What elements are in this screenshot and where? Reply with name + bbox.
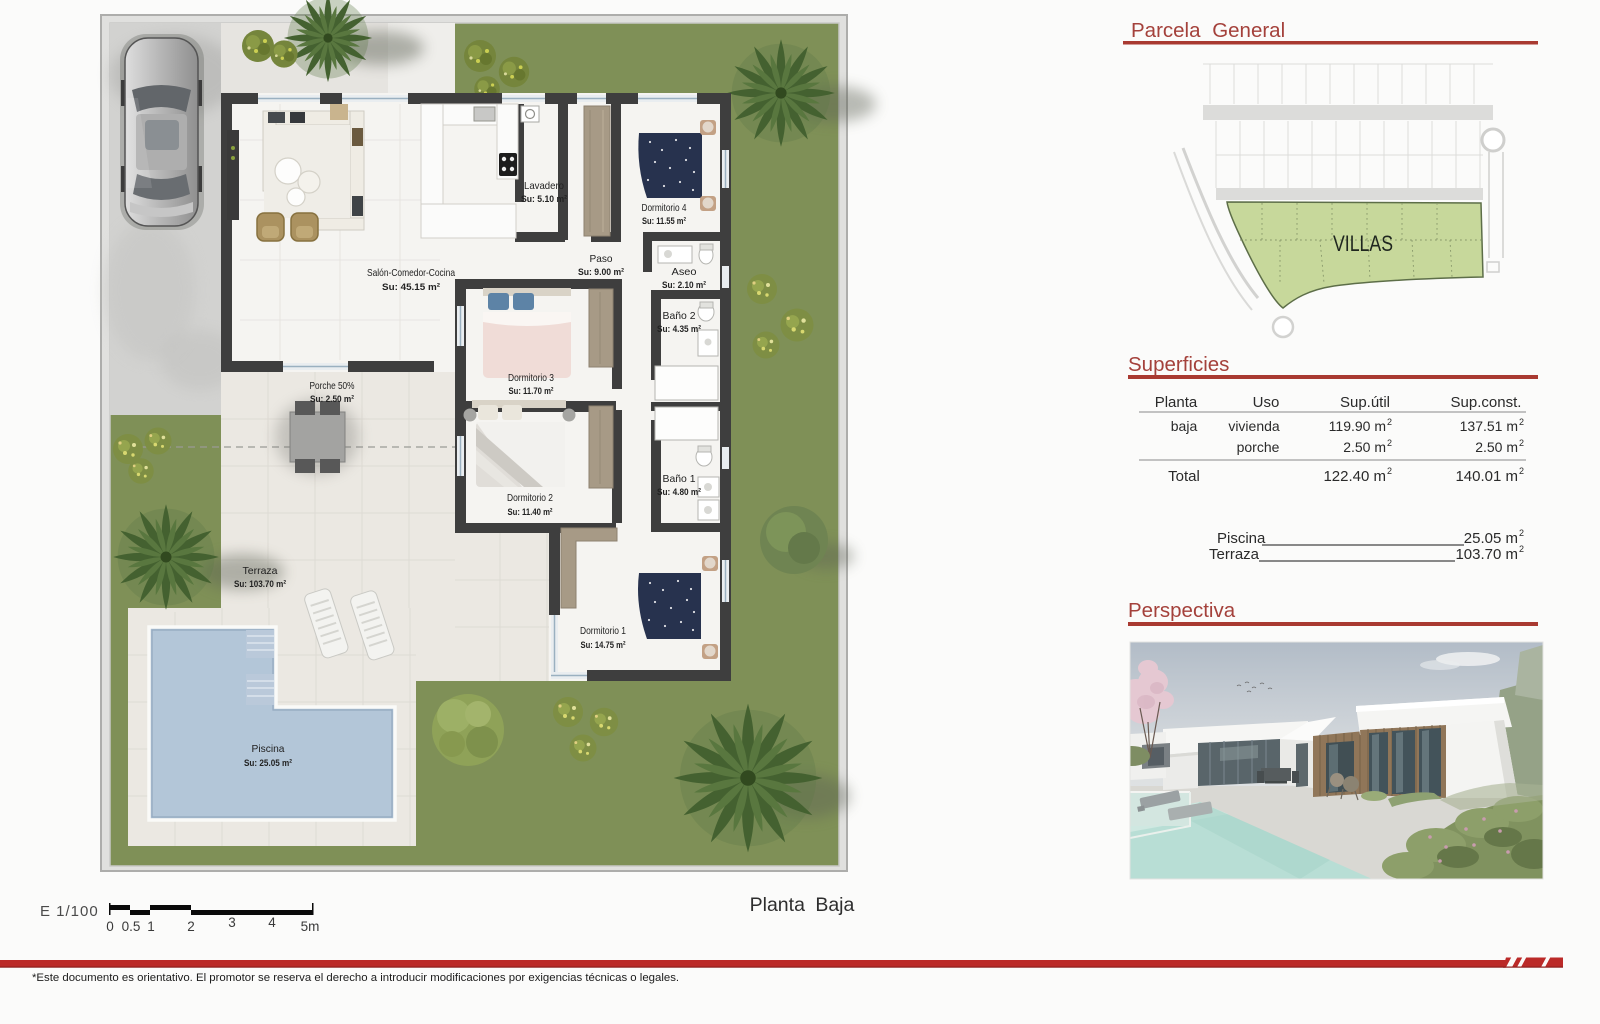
svg-text:Su: 2.10 m²: Su: 2.10 m²: [662, 280, 706, 291]
svg-text:Terraza: Terraza: [243, 565, 278, 577]
svg-text:Piscina: Piscina: [1217, 530, 1266, 547]
svg-text:porche: porche: [1237, 439, 1280, 455]
svg-text:2: 2: [1519, 466, 1524, 476]
svg-text:2: 2: [1519, 528, 1524, 538]
svg-text:122.40 m: 122.40 m: [1323, 468, 1386, 485]
svg-text:Su: 103.70 m²: Su: 103.70 m²: [234, 579, 286, 590]
svg-text:2: 2: [1519, 438, 1524, 448]
svg-text:0: 0: [106, 919, 114, 934]
svg-text:VILLAS: VILLAS: [1333, 231, 1393, 256]
svg-text:*Este documento es orientativo: *Este documento es orientativo. El promo…: [32, 972, 679, 984]
svg-text:137.51 m: 137.51 m: [1460, 418, 1518, 434]
svg-text:103.70 m: 103.70 m: [1455, 546, 1518, 563]
svg-text:Perspectiva: Perspectiva: [1128, 599, 1236, 622]
svg-text:Dormitorio 2: Dormitorio 2: [507, 492, 553, 504]
svg-text:Su: 14.75 m²: Su: 14.75 m²: [581, 640, 626, 651]
svg-text:0.5: 0.5: [122, 919, 141, 934]
svg-text:Planta: Planta: [1155, 394, 1198, 411]
svg-text:5m: 5m: [301, 919, 320, 934]
svg-text:Su: 4.35 m²: Su: 4.35 m²: [657, 324, 701, 335]
svg-text:Terraza: Terraza: [1209, 546, 1260, 563]
svg-text:Lavadero: Lavadero: [524, 180, 564, 192]
svg-text:2: 2: [1387, 466, 1392, 476]
svg-text:25.05 m: 25.05 m: [1464, 530, 1518, 547]
svg-text:vivienda: vivienda: [1228, 418, 1280, 434]
svg-text:140.01 m: 140.01 m: [1455, 468, 1518, 485]
svg-text:Su: 4.80 m²: Su: 4.80 m²: [657, 487, 701, 498]
svg-text:Su: 45.15 m²: Su: 45.15 m²: [382, 282, 440, 293]
svg-text:2: 2: [1519, 544, 1524, 554]
svg-text:Baño 2: Baño 2: [663, 310, 696, 322]
svg-text:Planta Baja: Planta Baja: [750, 894, 855, 916]
svg-text:2: 2: [187, 919, 195, 934]
svg-text:E 1/100: E 1/100: [40, 903, 99, 920]
svg-text:Su: 11.55 m²: Su: 11.55 m²: [642, 216, 686, 227]
svg-text:Su: 9.00 m²: Su: 9.00 m²: [578, 267, 624, 278]
svg-text:Su: 2.50 m²: Su: 2.50 m²: [310, 394, 354, 405]
svg-text:Sup.const.: Sup.const.: [1451, 394, 1522, 411]
svg-text:2.50 m: 2.50 m: [1343, 439, 1386, 455]
svg-text:3: 3: [228, 915, 236, 930]
svg-text:Superficies: Superficies: [1128, 353, 1229, 376]
svg-text:Su: 25.05 m²: Su: 25.05 m²: [244, 758, 292, 769]
svg-text:Aseo: Aseo: [672, 266, 697, 278]
svg-text:Paso: Paso: [590, 253, 613, 265]
svg-text:Dormitorio 4: Dormitorio 4: [642, 202, 687, 214]
svg-text:Su: 5.10 m²: Su: 5.10 m²: [521, 194, 567, 205]
svg-text:Piscina: Piscina: [252, 743, 285, 755]
svg-text:Total: Total: [1168, 468, 1200, 485]
svg-text:Parcela General: Parcela General: [1131, 19, 1285, 42]
svg-text:Salón-Comedor-Cocina: Salón-Comedor-Cocina: [367, 267, 455, 279]
svg-text:Su: 11.40 m²: Su: 11.40 m²: [508, 507, 553, 518]
svg-text:2.50 m: 2.50 m: [1475, 439, 1518, 455]
svg-text:Porche 50%: Porche 50%: [310, 380, 355, 392]
svg-text:Uso: Uso: [1253, 394, 1280, 411]
svg-text:2: 2: [1519, 417, 1524, 427]
svg-text:Sup.útil: Sup.útil: [1340, 394, 1390, 411]
svg-text:baja: baja: [1171, 418, 1198, 434]
svg-text:2: 2: [1387, 417, 1392, 427]
svg-text:Su: 11.70 m²: Su: 11.70 m²: [509, 386, 554, 397]
svg-text:1: 1: [147, 919, 155, 934]
svg-text:2: 2: [1387, 438, 1392, 448]
svg-text:Baño 1: Baño 1: [663, 473, 696, 485]
svg-text:Dormitorio 1: Dormitorio 1: [580, 625, 626, 637]
svg-text:119.90 m: 119.90 m: [1329, 418, 1386, 434]
svg-text:Dormitorio 3: Dormitorio 3: [508, 372, 554, 384]
svg-text:4: 4: [268, 915, 276, 930]
